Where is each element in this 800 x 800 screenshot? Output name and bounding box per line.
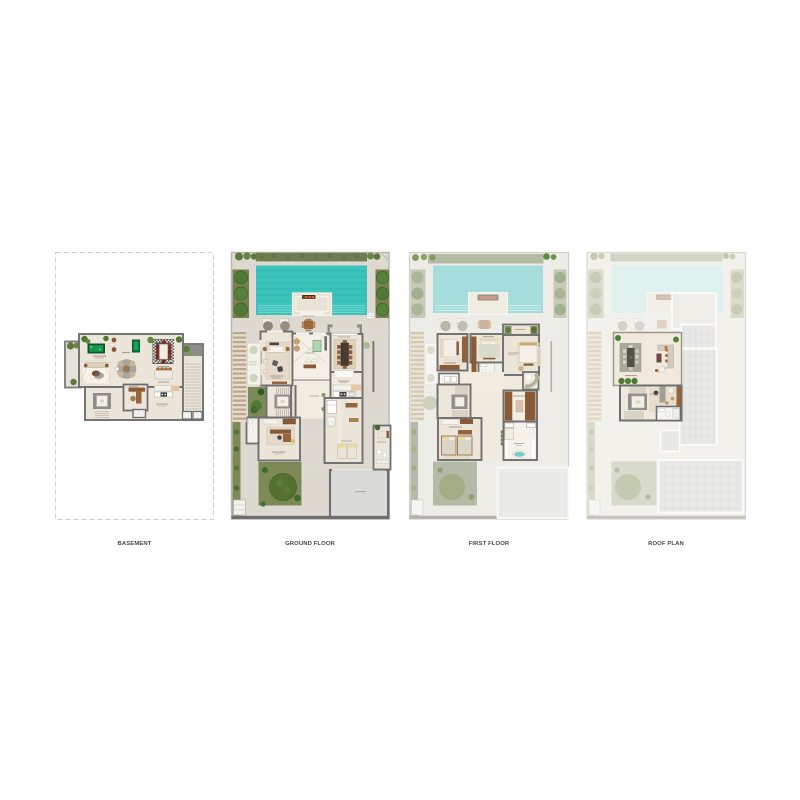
svg-text:BASEMENT: BASEMENT: [117, 541, 151, 547]
svg-text:FIRST FLOOR: FIRST FLOOR: [469, 541, 510, 547]
svg-text:GROUND FLOOR: GROUND FLOOR: [285, 541, 335, 547]
svg-text:ROOF PLAN: ROOF PLAN: [648, 541, 684, 547]
